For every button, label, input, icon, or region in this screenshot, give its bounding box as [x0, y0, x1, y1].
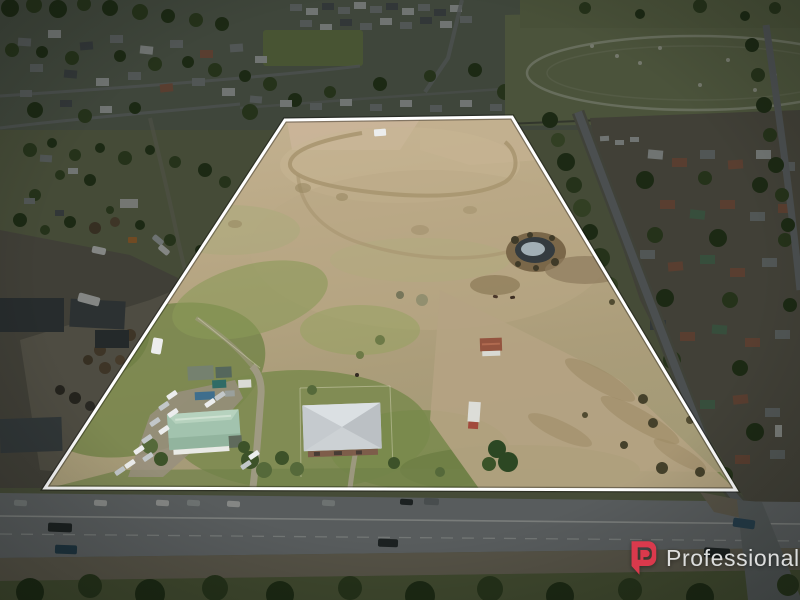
vignette: [0, 0, 800, 600]
professionals-p-logo-icon: [628, 540, 658, 576]
watermark-brand-text: Professionals: [666, 545, 800, 572]
aerial-scene: [0, 0, 800, 600]
aerial-photo: Professionals: [0, 0, 800, 600]
watermark: Professionals: [628, 540, 800, 576]
